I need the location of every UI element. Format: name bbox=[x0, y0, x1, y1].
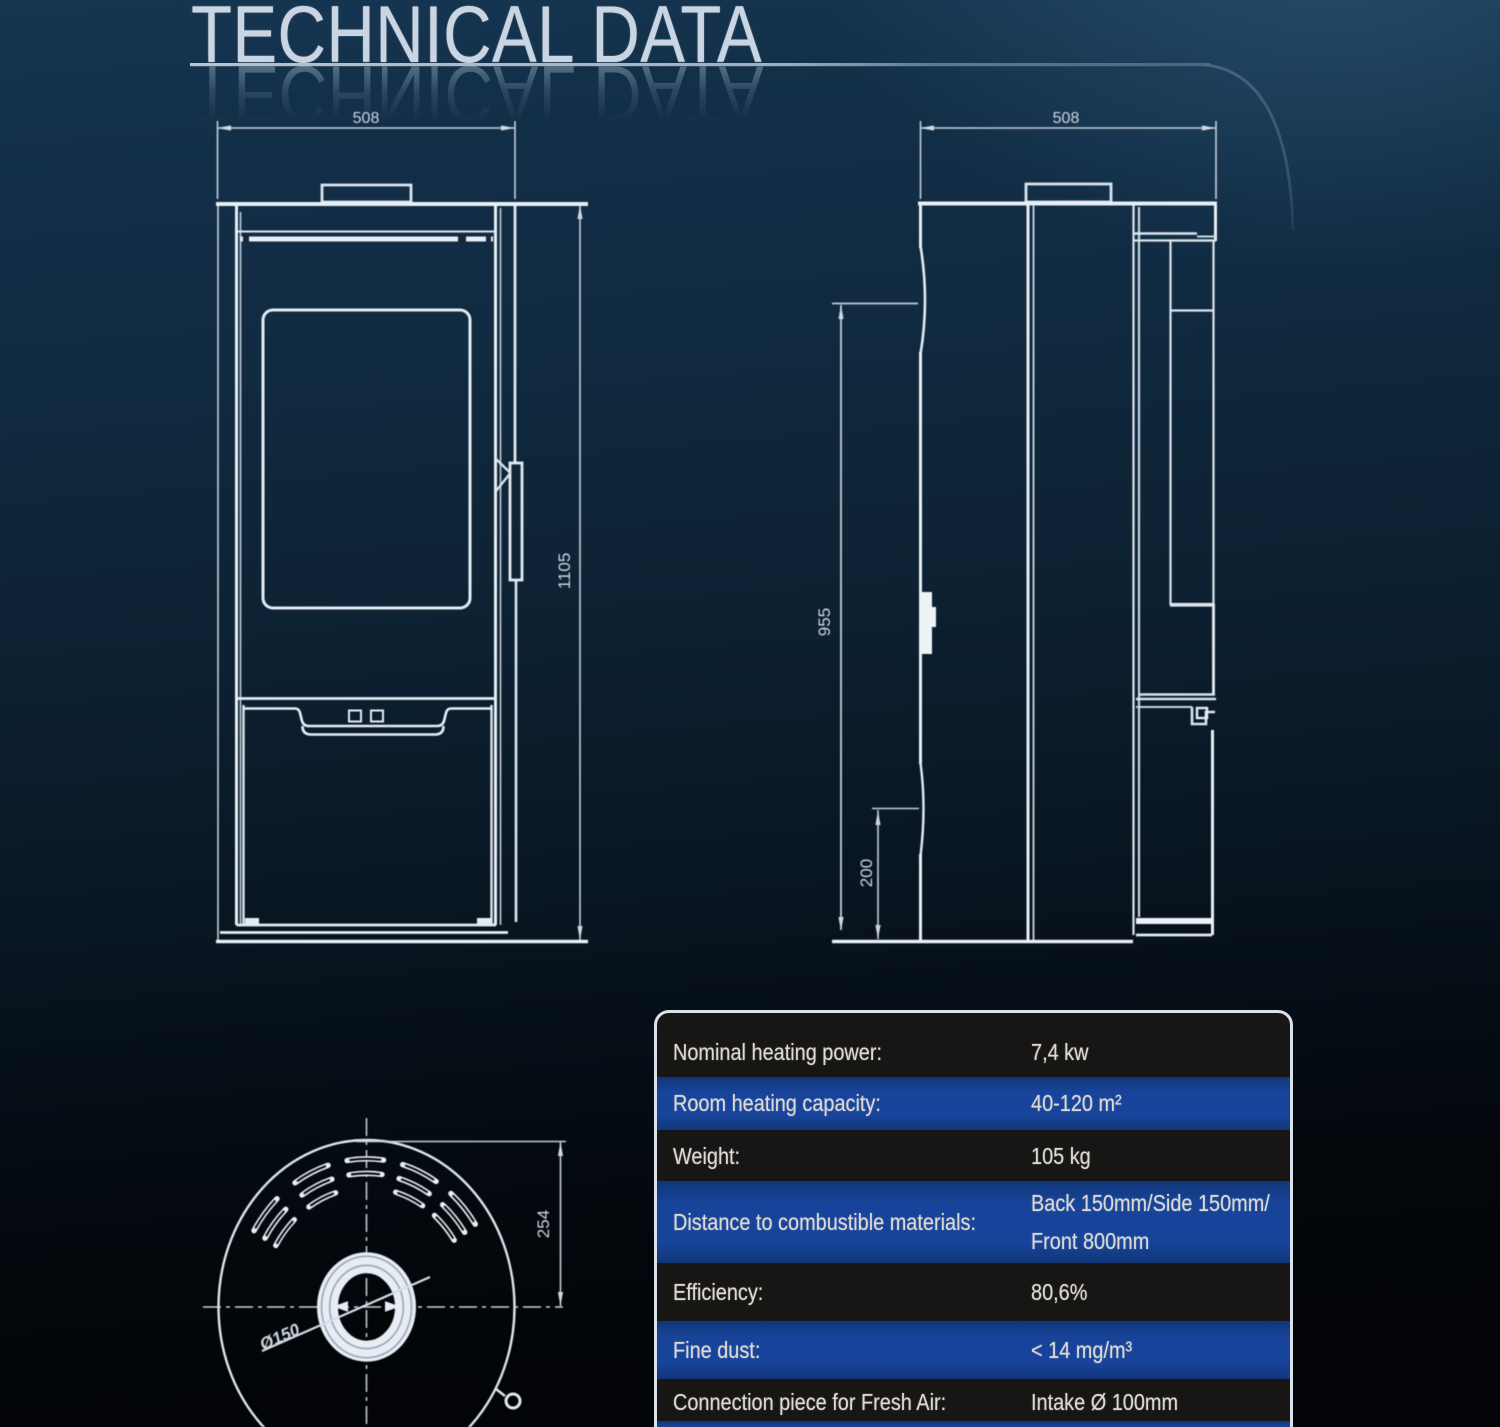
svg-text:200: 200 bbox=[857, 859, 876, 887]
svg-text:254: 254 bbox=[534, 1210, 553, 1238]
svg-text:Ø150: Ø150 bbox=[257, 1320, 303, 1354]
svg-text:508: 508 bbox=[353, 110, 380, 127]
svg-text:1105: 1105 bbox=[555, 553, 574, 590]
svg-text:508: 508 bbox=[1053, 110, 1080, 127]
svg-text:955: 955 bbox=[815, 608, 834, 636]
